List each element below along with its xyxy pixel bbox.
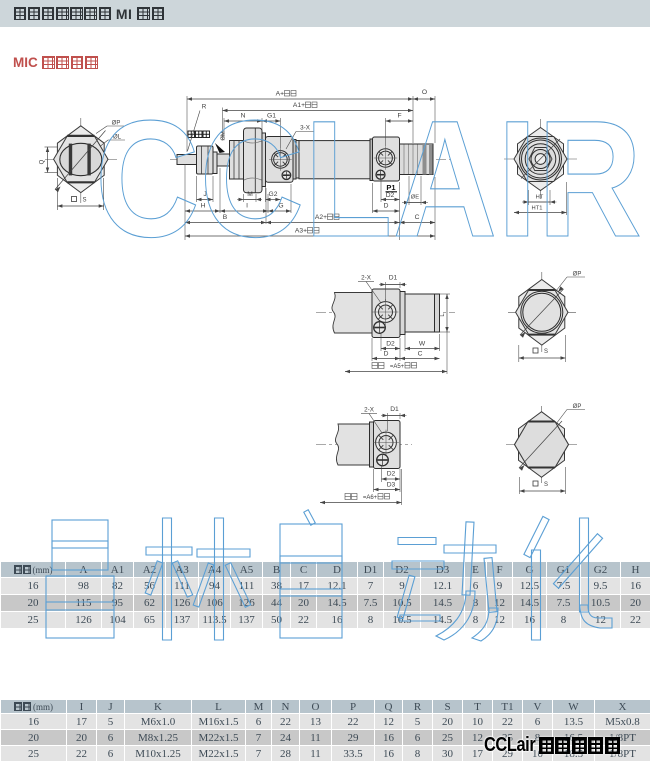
svg-text:CCLAIR: CCLAIR: [95, 87, 642, 272]
svg-text:D2: D2: [387, 471, 396, 478]
svg-text:D2: D2: [386, 341, 395, 348]
svg-text:Q: Q: [40, 159, 46, 164]
svg-text:S: S: [83, 198, 87, 204]
svg-text:=A6+: =A6+: [363, 495, 378, 501]
svg-text:ØP: ØP: [573, 272, 582, 278]
svg-text:S: S: [544, 349, 548, 355]
svg-text:2-X: 2-X: [364, 407, 375, 414]
svg-text:=A5+: =A5+: [390, 364, 405, 370]
svg-text:D: D: [384, 351, 389, 358]
svg-text:ØP: ØP: [573, 404, 582, 410]
svg-text:W: W: [419, 341, 426, 348]
svg-text:D1: D1: [389, 275, 398, 282]
svg-text:L: L: [440, 313, 446, 317]
svg-text:D3: D3: [387, 482, 396, 489]
svg-text:2-X: 2-X: [361, 275, 372, 282]
svg-text:S: S: [544, 482, 548, 488]
svg-text:D1: D1: [390, 406, 399, 413]
svg-text:C: C: [418, 351, 423, 358]
